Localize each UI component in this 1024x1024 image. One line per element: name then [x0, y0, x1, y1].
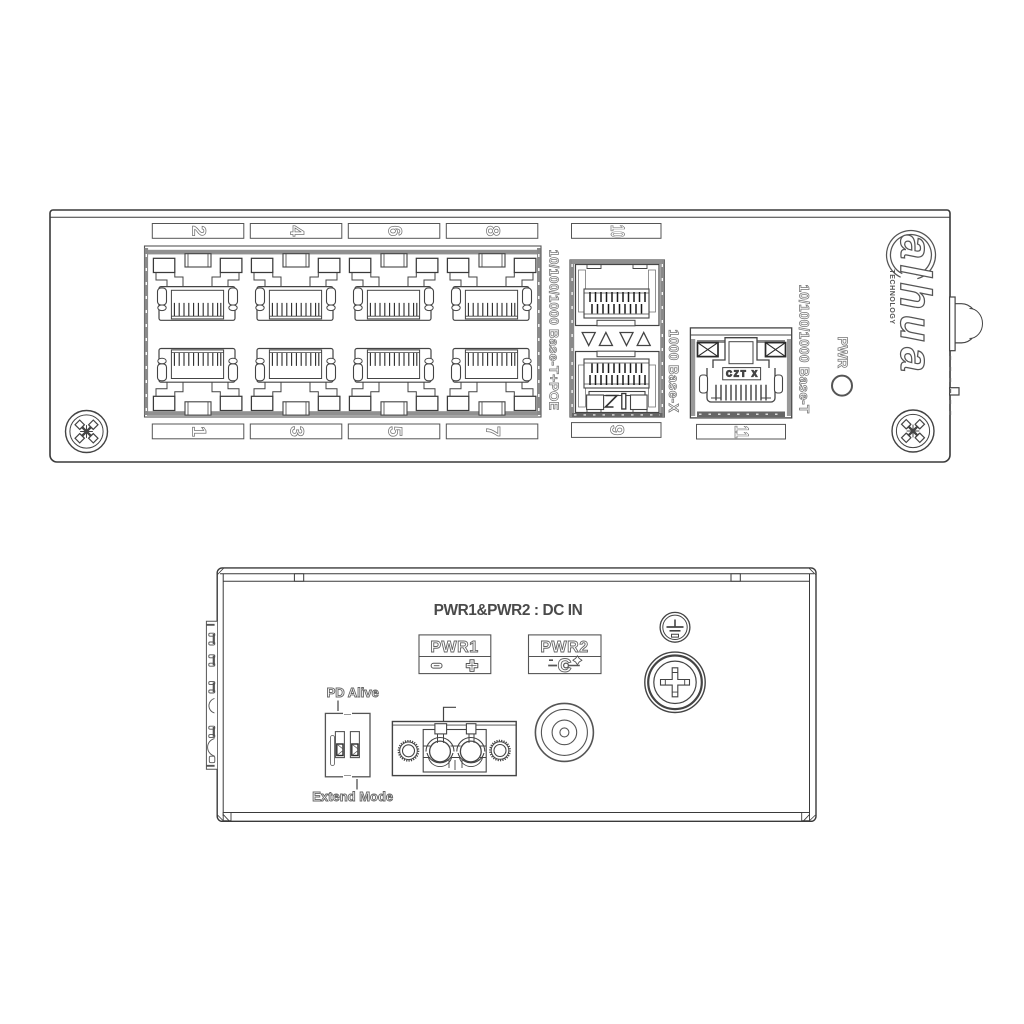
- svg-text:1000 Base-X: 1000 Base-X: [666, 329, 681, 412]
- svg-text:11: 11: [730, 425, 752, 438]
- svg-text:6: 6: [384, 225, 406, 236]
- svg-text:5: 5: [384, 426, 406, 437]
- svg-text:2: 2: [188, 225, 210, 236]
- svg-text:8: 8: [482, 225, 504, 236]
- svg-text:TECHNOLOGY: TECHNOLOGY: [888, 269, 895, 324]
- svg-text:10/100/1000 Base-T: 10/100/1000 Base-T: [797, 284, 812, 414]
- svg-text:PD Alive: PD Alive: [327, 685, 379, 700]
- svg-text:9: 9: [606, 425, 628, 436]
- svg-text:Extend Mode: Extend Mode: [312, 789, 393, 804]
- svg-text:alhua: alhua: [891, 235, 940, 377]
- svg-text:PWR: PWR: [835, 337, 850, 369]
- svg-text:4: 4: [286, 225, 308, 236]
- svg-text:3: 3: [286, 426, 308, 437]
- svg-text:1: 1: [188, 426, 210, 437]
- svg-text:CZT X: CZT X: [726, 370, 758, 379]
- svg-text:PWR1&PWR2 : DC IN: PWR1&PWR2 : DC IN: [434, 602, 583, 619]
- svg-text:PWR1: PWR1: [430, 639, 478, 656]
- svg-text:7: 7: [482, 426, 504, 437]
- svg-text:10/100/1000 Base-T+POE: 10/100/1000 Base-T+POE: [547, 250, 562, 411]
- svg-text:10: 10: [606, 225, 627, 238]
- svg-text:PWR2: PWR2: [540, 639, 588, 656]
